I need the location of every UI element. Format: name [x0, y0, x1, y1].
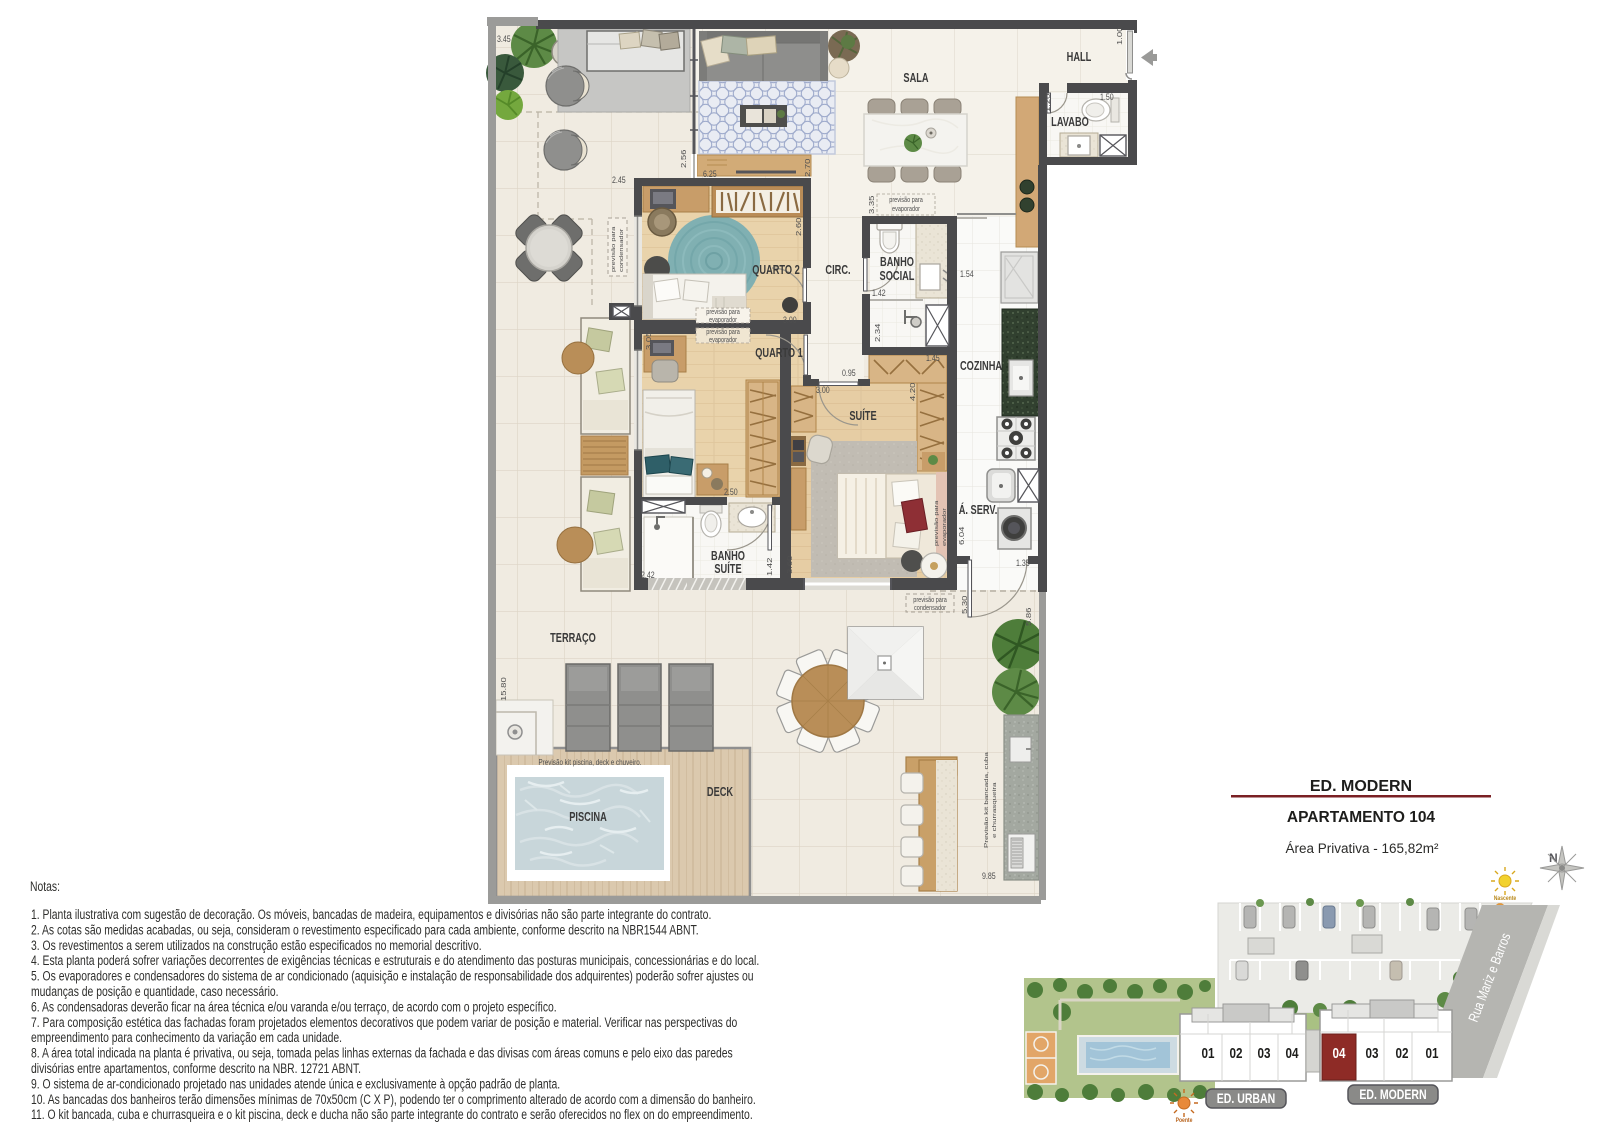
svg-text:01: 01: [1201, 1045, 1214, 1062]
svg-text:CIRC.: CIRC.: [825, 264, 850, 278]
svg-text:3.45: 3.45: [497, 33, 511, 44]
svg-text:evaporador: evaporador: [709, 316, 738, 324]
svg-text:10. As bancadas dos banheiros: 10. As bancadas dos banheiros terão dime…: [31, 1091, 756, 1107]
svg-text:3.00: 3.00: [783, 314, 797, 325]
svg-text:8. A área total indicada na pl: 8. A área total indicada na planta é pri…: [31, 1045, 733, 1061]
svg-text:BANHO: BANHO: [711, 550, 745, 564]
svg-text:Á. SERV.: Á. SERV.: [959, 503, 998, 518]
svg-text:2.50: 2.50: [724, 486, 738, 497]
svg-text:APARTAMENTO 104: APARTAMENTO 104: [1287, 809, 1436, 826]
svg-text:1.45: 1.45: [926, 352, 940, 363]
svg-text:15.80: 15.80: [499, 677, 507, 701]
svg-text:previsão para: previsão para: [913, 596, 947, 604]
svg-text:11. O kit bancada, cuba e chur: 11. O kit bancada, cuba e churrasqueira …: [31, 1107, 753, 1123]
svg-text:6.25: 6.25: [703, 168, 717, 179]
svg-text:03: 03: [1257, 1045, 1270, 1062]
svg-text:TERRAÇO: TERRAÇO: [550, 632, 596, 646]
svg-text:3.60: 3.60: [785, 555, 793, 574]
svg-text:previsão para: previsão para: [889, 196, 923, 204]
svg-text:previsão para: previsão para: [706, 308, 740, 316]
svg-text:1.42: 1.42: [872, 287, 886, 298]
svg-text:2.60: 2.60: [794, 217, 802, 236]
svg-text:5. Os evaporadores e condensad: 5. Os evaporadores e condensadores do si…: [31, 968, 753, 984]
svg-text:previsão para: previsão para: [934, 500, 940, 546]
svg-text:Previsão kit bancada, cuba: Previsão kit bancada, cuba: [984, 752, 990, 848]
svg-text:Área Privativa - 165,82m²: Área Privativa - 165,82m²: [1285, 841, 1439, 856]
svg-text:mudanças de posição e quantida: mudanças de posição e quantidade, caso n…: [31, 984, 279, 1000]
svg-text:evaporador: evaporador: [942, 507, 948, 546]
svg-text:Notas:: Notas:: [30, 879, 60, 895]
svg-text:9. O sistema de ar-condicionad: 9. O sistema de ar-condicionado projetad…: [31, 1076, 560, 1092]
svg-text:02: 02: [1229, 1045, 1242, 1062]
svg-text:1.20: 1.20: [1043, 93, 1051, 112]
svg-text:2.56: 2.56: [679, 149, 687, 168]
svg-text:2.34: 2.34: [873, 323, 881, 342]
svg-text:1.42: 1.42: [765, 557, 773, 576]
svg-text:SOCIAL: SOCIAL: [880, 270, 915, 284]
svg-text:9.85: 9.85: [982, 870, 996, 881]
svg-text:5.30: 5.30: [960, 595, 968, 614]
svg-text:LAVABO: LAVABO: [1051, 116, 1089, 130]
svg-text:3.00: 3.00: [816, 384, 830, 395]
svg-text:ED. URBAN: ED. URBAN: [1217, 1091, 1275, 1107]
svg-text:Nascente: Nascente: [1494, 896, 1517, 903]
svg-text:empreendimento para conhecimen: empreendimento para conhecimento da vari…: [31, 1030, 342, 1046]
svg-text:04: 04: [1332, 1045, 1345, 1062]
svg-text:previsão para: previsão para: [611, 226, 617, 272]
svg-text:e churrasqueira: e churrasqueira: [992, 782, 998, 838]
svg-text:03: 03: [1365, 1045, 1378, 1062]
svg-text:Previsão kit piscina, deck e c: Previsão kit piscina, deck e chuveiro.: [538, 757, 641, 767]
svg-text:QUARTO 1: QUARTO 1: [755, 347, 803, 361]
svg-text:1.54: 1.54: [960, 268, 974, 279]
svg-text:3. Os revestimentos a serem ut: 3. Os revestimentos a serem utilizados n…: [31, 937, 482, 953]
svg-text:COZINHA: COZINHA: [960, 360, 1002, 374]
svg-text:3.35: 3.35: [867, 195, 875, 214]
svg-text:0.95: 0.95: [842, 367, 856, 378]
svg-text:SALA: SALA: [903, 72, 928, 86]
svg-text:1.50: 1.50: [1100, 91, 1114, 102]
svg-text:7. Para composição estética da: 7. Para composição estética das fachadas…: [31, 1014, 738, 1030]
svg-text:4.20: 4.20: [908, 382, 916, 401]
svg-text:ED. MODERN: ED. MODERN: [1310, 778, 1412, 795]
svg-text:02: 02: [1395, 1045, 1408, 1062]
svg-text:PISCINA: PISCINA: [569, 811, 607, 825]
svg-text:1.35: 1.35: [1016, 557, 1030, 568]
svg-text:2.45: 2.45: [612, 174, 626, 185]
svg-text:SUÍTE: SUÍTE: [849, 409, 876, 424]
svg-text:3.05: 3.05: [644, 331, 652, 350]
svg-text:QUARTO 2: QUARTO 2: [752, 264, 800, 278]
svg-text:evaporador: evaporador: [892, 205, 921, 213]
svg-text:ED. MODERN: ED. MODERN: [1359, 1087, 1426, 1103]
svg-text:4. Esta planta poderá sofrer v: 4. Esta planta poderá sofrer variações d…: [31, 953, 759, 969]
svg-text:previsão para: previsão para: [706, 328, 740, 336]
svg-text:1. Planta ilustrativa com suge: 1. Planta ilustrativa com sugestão de de…: [31, 907, 711, 923]
svg-text:SUÍTE: SUÍTE: [714, 562, 741, 577]
svg-text:5.86: 5.86: [1024, 607, 1032, 626]
svg-text:04: 04: [1285, 1045, 1298, 1062]
svg-text:HALL: HALL: [1067, 51, 1092, 65]
svg-text:2.42: 2.42: [641, 569, 655, 580]
svg-text:condensador: condensador: [914, 604, 947, 612]
svg-text:2. As cotas são medidas acabad: 2. As cotas são medidas acabadas, ou sej…: [31, 922, 699, 938]
svg-text:BANHO: BANHO: [880, 256, 914, 270]
svg-text:divisórias entre apartamentos,: divisórias entre apartamentos, conforme …: [31, 1061, 361, 1077]
svg-text:condensador: condensador: [619, 228, 625, 272]
svg-text:6.04: 6.04: [957, 526, 965, 545]
svg-text:2.70: 2.70: [803, 158, 811, 177]
svg-text:6. As condensadoras deverão fi: 6. As condensadoras deverão ficar na áre…: [31, 999, 557, 1015]
svg-text:Poente: Poente: [1176, 1118, 1194, 1125]
svg-text:01: 01: [1425, 1045, 1438, 1062]
svg-text:evaporador: evaporador: [709, 336, 738, 344]
svg-text:DECK: DECK: [707, 786, 733, 800]
svg-text:1.00: 1.00: [1115, 26, 1123, 45]
